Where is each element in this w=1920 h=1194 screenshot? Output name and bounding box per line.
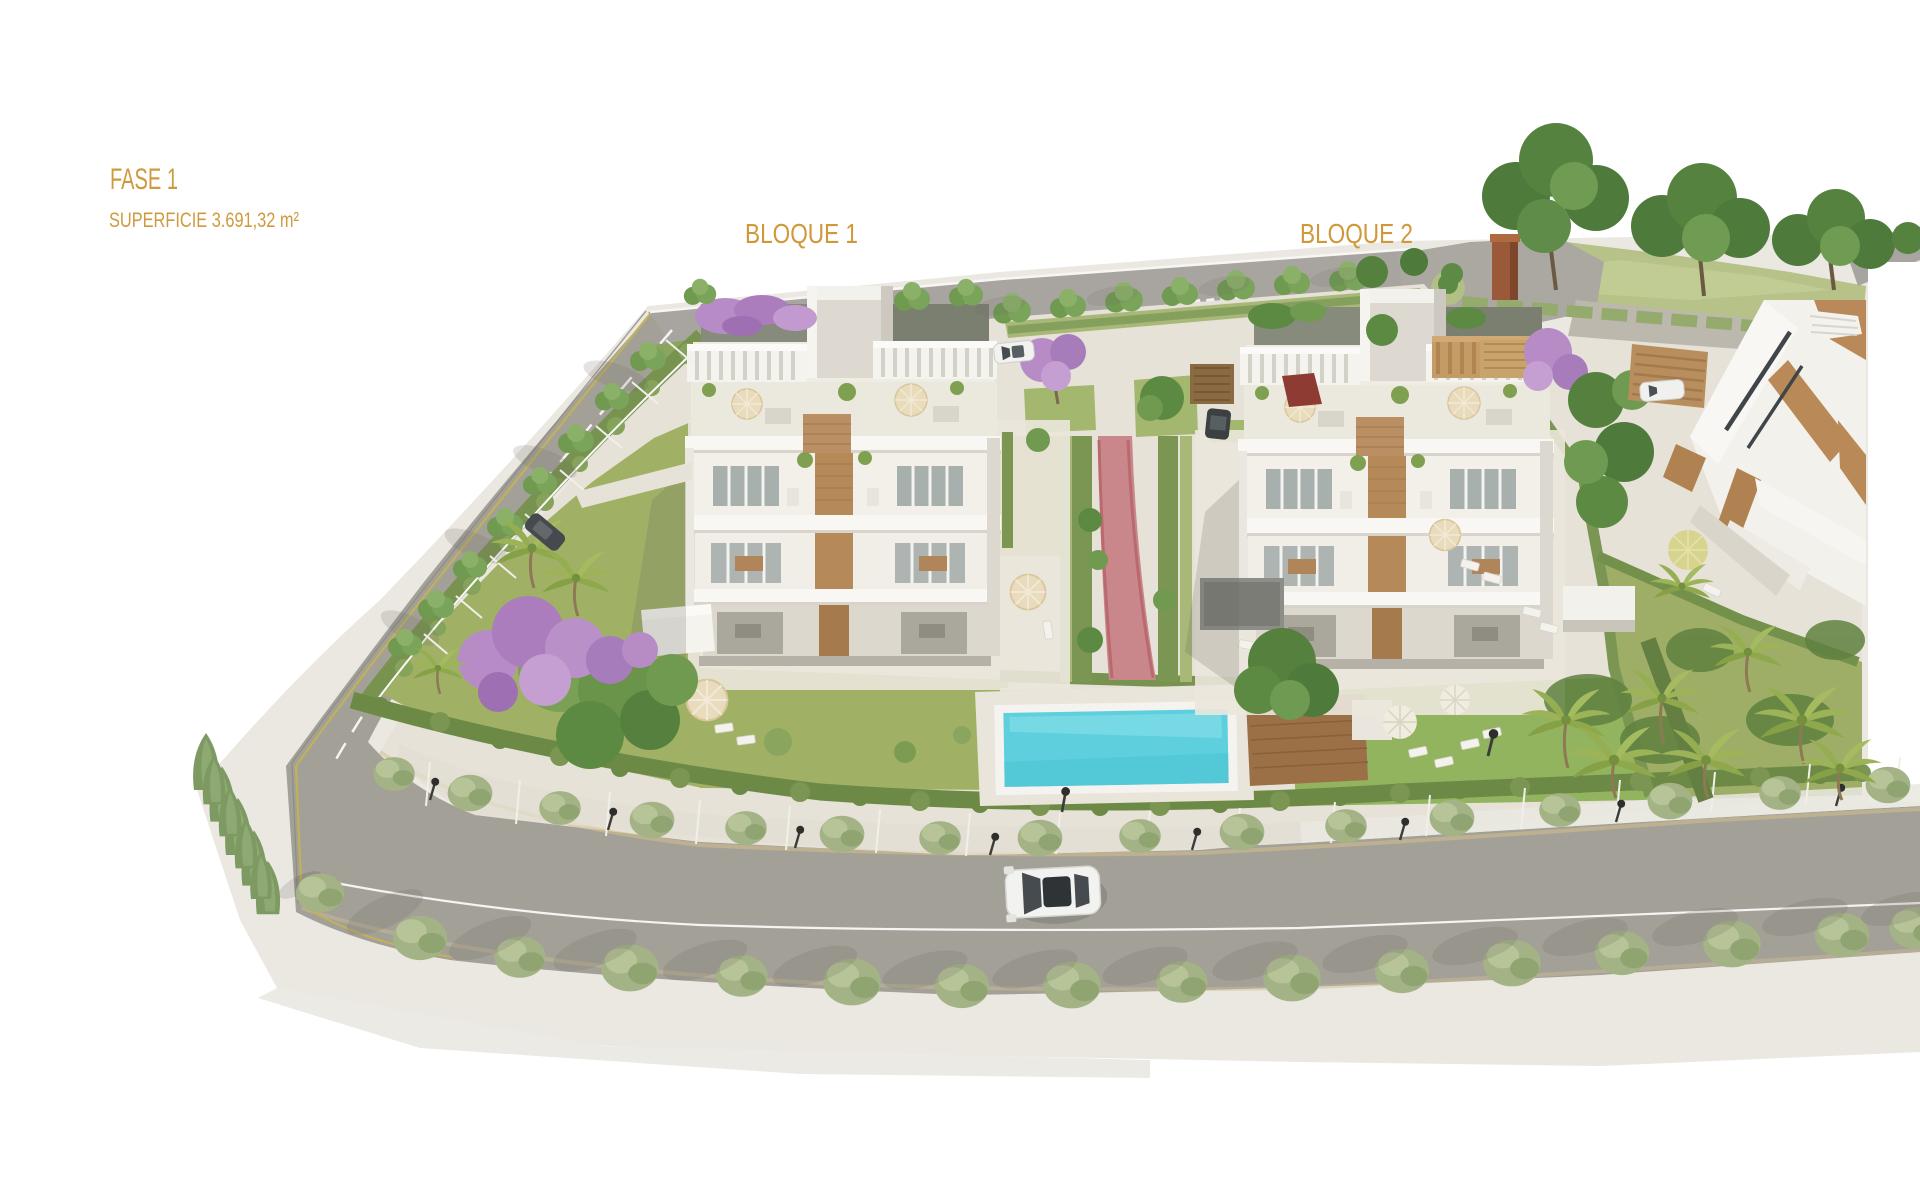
svg-text:BLOQUE 1: BLOQUE 1 xyxy=(745,218,858,249)
svg-text:FASE 1: FASE 1 xyxy=(110,163,178,196)
svg-text:SUPERFICIE 3.691,32 m²: SUPERFICIE 3.691,32 m² xyxy=(109,208,299,232)
svg-text:BLOQUE 2: BLOQUE 2 xyxy=(1300,218,1413,249)
